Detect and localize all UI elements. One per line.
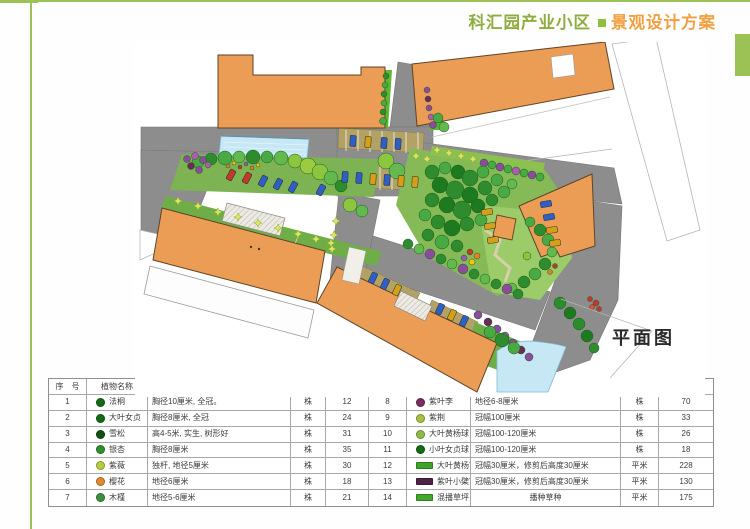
cell-no: 14 [369,490,407,506]
col-header-unit: 单 位 [291,379,326,395]
plant-symbol-icon [416,398,425,407]
cell-no: 4 [49,443,87,459]
plant-symbol-icon [416,445,425,454]
building [153,208,325,303]
cell-no: 1 [49,395,87,411]
plant-name: 大叶黄杨球 [429,430,469,438]
col-header-spec: 规格 (cm) [148,379,291,395]
plant-symbol-icon [96,430,105,439]
cell-spec: 播种草种 [471,490,621,506]
entrance-canopy [222,203,285,236]
cell-no: 11 [369,443,407,459]
greenery-group [161,67,572,380]
cell-unit: 株 [291,443,326,459]
cell-qty: 18 [326,474,369,490]
cell-unit: 株 [291,411,326,427]
roads-group [141,62,622,376]
cell-qty: 33 [659,411,713,427]
cell-qty: 31 [326,427,369,443]
cell-qty: 12 [326,395,369,411]
cell-plant: 雪松 [87,427,148,443]
cell-unit: 株 [621,411,659,427]
boundary-lines [140,42,700,260]
plant-symbol-icon [96,477,105,486]
cell-plant: 紫薇 [87,458,148,474]
plant-name: 紫叶李 [429,398,453,406]
cell-no: 5 [49,458,87,474]
cell-spec: 冠幅100厘米 [471,411,621,427]
plant-name: 大叶女贞 [109,414,141,422]
plant-name: 混播草坪 [437,494,469,502]
cell-qty: 70 [659,395,713,411]
cell-plant: 大叶黄杨球 [407,427,471,443]
cell-spec: 独杆, 地径5厘米 [148,458,291,474]
cell-unit: 株 [291,474,326,490]
cell-plant: 银杏 [87,443,148,459]
cell-unit: 平米 [621,474,659,490]
cell-no: 6 [49,474,87,490]
col-header-name: 植物名称 [87,379,148,395]
cell-no: 13 [369,474,407,490]
col-header-qty: 数 量 [326,379,369,395]
plant-name: 紫薇 [109,462,125,470]
lawn-symbol-icon [416,494,433,501]
hedge-symbol-icon [416,462,433,469]
cell-plant: 法桐 [87,395,148,411]
cell-spec: 冠幅100-120厘米 [471,443,621,459]
plant-schedule-table: 序 号 植物名称 规格 (cm) 单 位 数 量 1 法桐 胸径10厘米, 全冠… [48,378,714,507]
plant-name: 紫荆 [429,414,445,422]
cell-no: 12 [369,458,407,474]
divider-line-stub [0,0,38,3]
water-group [219,136,566,392]
cell-no: 7 [49,490,87,506]
plant-symbol-icon [96,398,105,407]
cell-qty: 228 [659,458,713,474]
cell-qty: 18 [659,443,713,459]
entrance-canopy [394,291,432,321]
trees-group [184,73,602,361]
design-sheet: 科汇园产业小区景观设计方案 平面图 [0,0,750,529]
cell-spec: 冠幅30厘米，修剪后高度30厘米 [471,458,621,474]
buildings-group [144,42,614,392]
building [317,267,497,392]
cell-spec: 胸径8厘米, 全冠 [148,411,291,427]
cell-spec: 冠幅100-120厘米 [471,427,621,443]
plant-name: 樱花 [109,478,125,486]
cell-qty: 175 [659,490,713,506]
cell-qty: 21 [326,490,369,506]
plant-symbol-icon [96,445,105,454]
plant-name: 法桐 [109,398,125,406]
plant-symbol-icon [416,414,425,423]
plant-symbol-icon [96,414,105,423]
cell-spec: 冠幅30厘米，修剪后高度30厘米 [471,474,621,490]
plant-name: 大叶黄杨篱 [437,462,471,470]
walkway [342,247,366,284]
project-name: 科汇园产业小区 [469,14,592,32]
cell-unit: 株 [621,395,659,411]
pavilion [493,215,516,240]
cell-spec: 胸径10厘米, 全冠。 [148,395,291,411]
cell-plant: 大叶黄杨篱 [407,458,471,474]
plant-name: 银杏 [109,446,125,454]
accent-block [735,34,750,76]
building-outline [144,266,314,338]
cell-spec: 地径5-6厘米 [148,490,291,506]
doc-title: 景观设计方案 [611,14,716,32]
groundcover-stars [174,146,477,253]
table-header-empty [407,379,471,395]
cell-no: 9 [369,411,407,427]
divider-line-horizontal [0,0,750,2]
cell-no: 10 [369,427,407,443]
cell-spec: 高4-5米, 实生, 树形好 [148,427,291,443]
table-header-empty [621,379,659,395]
plant-symbol-icon [96,461,105,470]
building [412,42,614,126]
cell-unit: 株 [291,458,326,474]
cell-plant: 小叶女贞球 [407,443,471,459]
bullet-square-icon [598,19,606,27]
cell-unit: 株 [291,490,326,506]
col-header-index: 序 号 [49,379,87,395]
cell-unit: 平米 [621,458,659,474]
cell-spec: 胸径8厘米 [148,443,291,459]
plant-symbol-icon [96,493,105,502]
building [519,174,595,257]
cell-unit: 株 [621,443,659,459]
cell-no: 3 [49,427,87,443]
cell-no: 8 [369,395,407,411]
cell-plant: 紫叶小檗篱 [407,474,471,490]
cell-plant: 大叶女贞 [87,411,148,427]
cars-group [226,135,561,327]
plant-symbol-icon [416,430,425,439]
parking-group [220,128,570,338]
cell-qty: 130 [659,474,713,490]
cell-qty: 26 [659,427,713,443]
plant-name: 木槿 [109,494,125,502]
structures-group [222,203,516,321]
cell-unit: 株 [291,395,326,411]
cell-qty: 35 [326,443,369,459]
cell-qty: 24 [326,411,369,427]
table-header-empty [369,379,407,395]
cell-plant: 紫叶李 [407,395,471,411]
plan-view-label: 平面图 [612,324,675,350]
plant-name: 紫叶小檗篱 [437,478,471,486]
table-header-empty [471,379,621,395]
cell-plant: 紫荆 [407,411,471,427]
cell-unit: 平米 [621,490,659,506]
cell-spec: 地径6-8厘米 [471,395,621,411]
cell-spec: 地径6厘米 [148,474,291,490]
cell-qty: 30 [326,458,369,474]
cell-plant: 混播草坪 [407,490,471,506]
page-title: 科汇园产业小区景观设计方案 [469,9,717,33]
cell-plant: 木槿 [87,490,148,506]
table-header-empty [659,379,713,395]
cell-unit: 株 [291,427,326,443]
building [218,55,385,128]
parking-dividers [230,130,418,192]
plant-name: 雪松 [109,430,125,438]
cell-no: 2 [49,411,87,427]
divider-line-vertical [30,0,32,529]
cell-unit: 株 [621,427,659,443]
cell-plant: 樱花 [87,474,148,490]
hedge-symbol-icon [416,478,433,485]
plant-name: 小叶女贞球 [429,446,469,454]
